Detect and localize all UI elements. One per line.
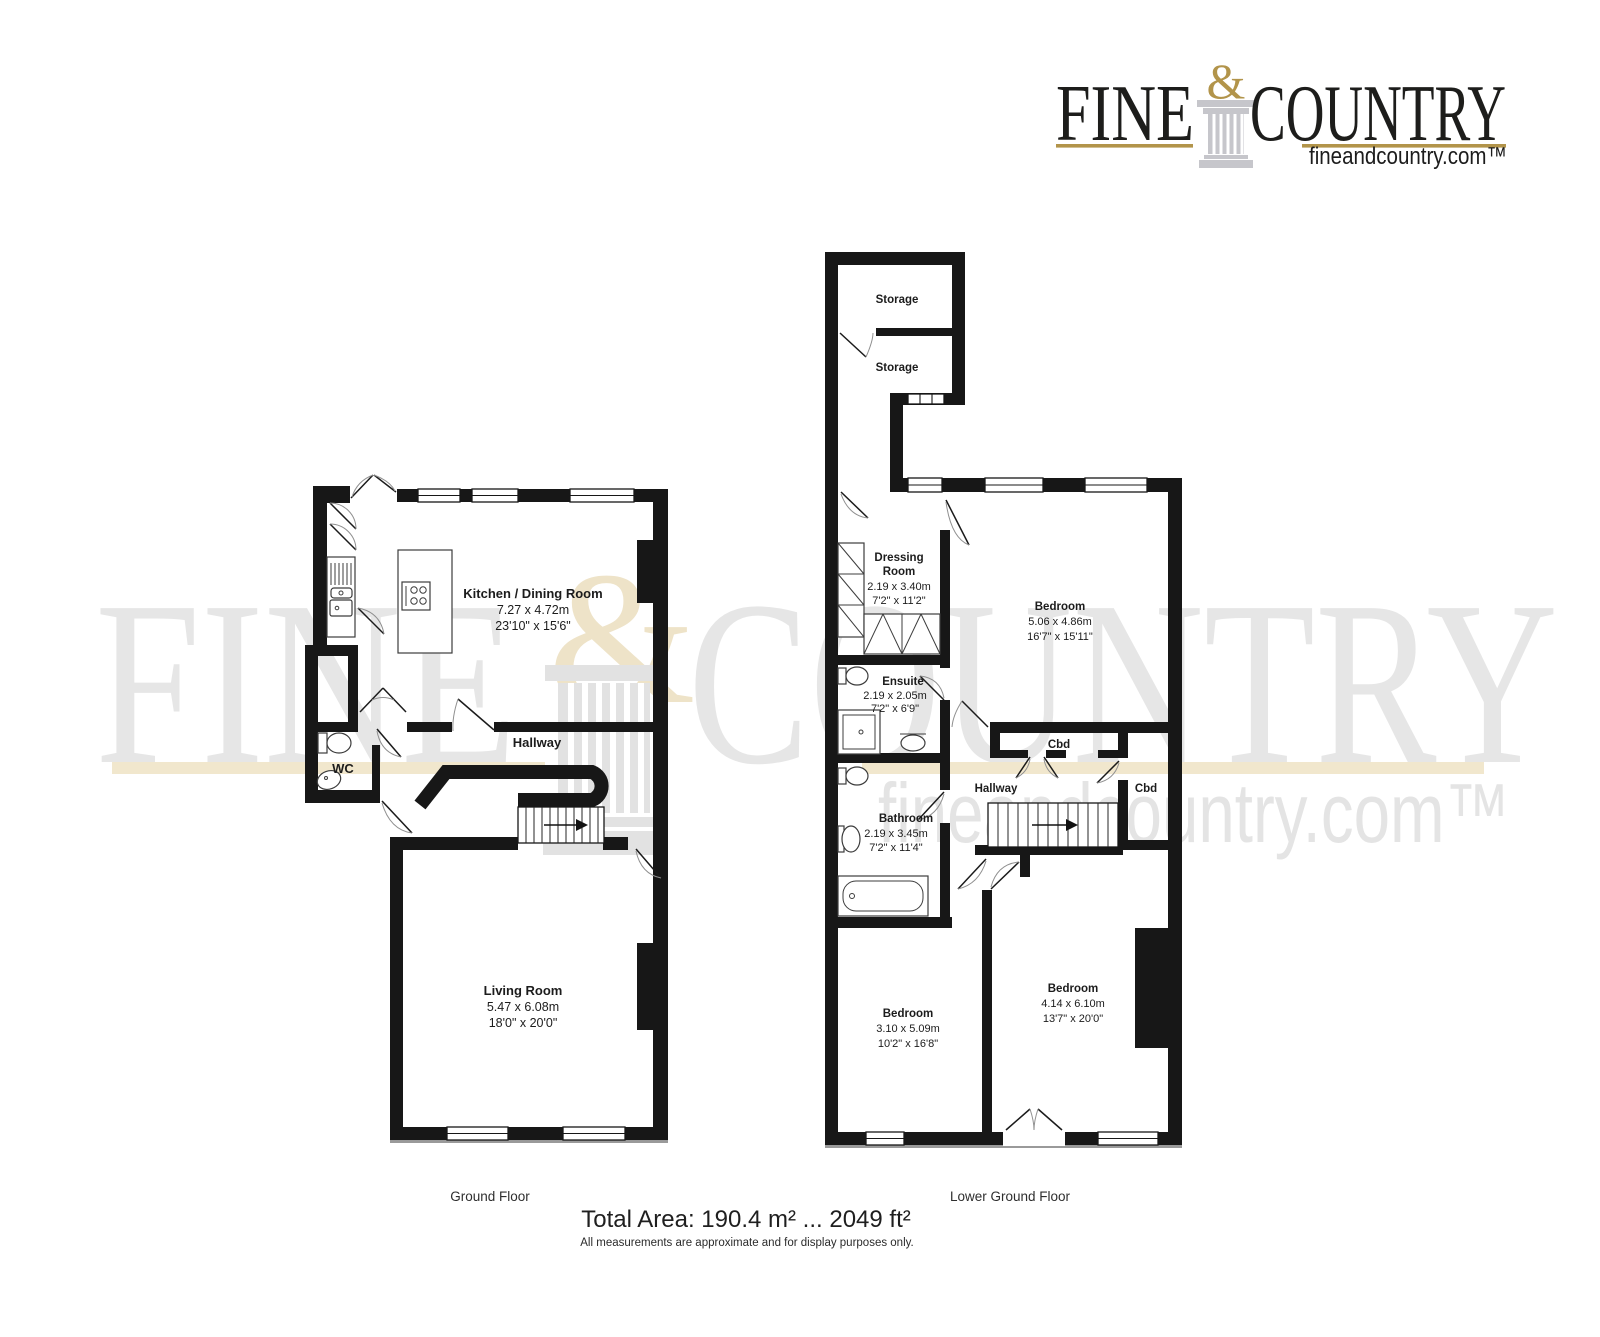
cbd1-name: Cbd — [1048, 739, 1070, 751]
dressing-room-metric: 2.19 x 3.40m — [867, 581, 931, 593]
lower-ground-stairs — [988, 803, 1118, 847]
captions: Ground Floor Lower Ground Floor Total Ar… — [450, 1189, 1070, 1249]
window — [1098, 1132, 1158, 1145]
ensuite-metric: 2.19 x 2.05m — [863, 690, 927, 702]
living-room-metric: 5.47 x 6.08m — [487, 1000, 559, 1014]
logo-website: fineandcountry.com™ — [1309, 143, 1507, 170]
ground-floor-title: Ground Floor — [450, 1189, 530, 1204]
patio-door-opening — [1003, 1131, 1065, 1146]
storage2-name: Storage — [876, 362, 919, 374]
window — [563, 1127, 625, 1140]
window — [908, 478, 942, 492]
bedroom3-name: Bedroom — [1048, 983, 1098, 995]
dressing-room-imperial: 7'2" x 11'2" — [872, 595, 925, 607]
disclaimer-text: All measurements are approximate and for… — [580, 1237, 913, 1249]
watermark-website: fineandcountry.com™ — [878, 766, 1510, 860]
bedroom3-imperial: 13'7" x 20'0" — [1043, 1013, 1103, 1025]
lower-ground-floor-title: Lower Ground Floor — [950, 1189, 1071, 1204]
window — [866, 1132, 904, 1145]
bathroom-imperial: 7'2" x 11'4" — [869, 842, 922, 854]
window — [985, 478, 1043, 492]
window — [447, 1127, 508, 1140]
window — [472, 489, 518, 502]
logo-column-icon — [1197, 100, 1255, 168]
total-area-text: Total Area: 190.4 m² ... 2049 ft² — [581, 1206, 911, 1233]
dressing-room-name-1: Dressing — [874, 552, 923, 564]
logo-gold-underline-left — [1056, 144, 1193, 148]
bathroom-metric: 2.19 x 3.45m — [864, 828, 928, 840]
kitchen-metric: 7.27 x 4.72m — [497, 603, 569, 617]
cbd2-name: Cbd — [1135, 783, 1157, 795]
bedroom2-metric: 3.10 x 5.09m — [876, 1023, 940, 1035]
storage1-name: Storage — [876, 294, 919, 306]
ensuite-name: Ensuite — [882, 676, 924, 688]
kitchen-imperial: 23'10" x 15'6" — [495, 619, 571, 633]
wc-toilet-icon — [318, 733, 351, 753]
dressing-room-name-2: Room — [883, 566, 916, 578]
bedroom1-imperial: 16'7" x 15'11" — [1027, 631, 1093, 643]
storage-steps — [908, 394, 944, 404]
bedroom1-name: Bedroom — [1035, 601, 1085, 613]
floorplan-page: FINE & COUNTRY fineandcountry.com™ FINE … — [0, 0, 1600, 1337]
kitchen-counter-sink-icon — [327, 557, 355, 637]
window — [418, 489, 460, 502]
ensuite-imperial: 7'2" x 6'9" — [871, 703, 919, 715]
fine-and-country-logo: FINE & COUNTRY fineandcountry.com™ — [1056, 53, 1507, 170]
bathroom-toilet-icon — [838, 767, 868, 785]
living-room-name: Living Room — [484, 983, 563, 998]
window — [1085, 478, 1147, 492]
living-room-imperial: 18'0" x 20'0" — [489, 1016, 558, 1030]
bath-icon — [838, 876, 928, 916]
wc-name: WC — [332, 761, 354, 776]
double-door — [1006, 1109, 1062, 1130]
bedroom1-metric: 5.06 x 4.86m — [1028, 616, 1092, 628]
bathroom-name: Bathroom — [879, 813, 933, 825]
window — [570, 489, 634, 502]
kitchen-name: Kitchen / Dining Room — [463, 586, 602, 601]
bedroom3-metric: 4.14 x 6.10m — [1041, 998, 1105, 1010]
bathroom-basin-icon — [838, 826, 860, 852]
bedroom2-imperial: 10'2" x 16'8" — [878, 1038, 938, 1050]
ensuite-toilet-icon — [838, 667, 868, 685]
bedroom2-name: Bedroom — [883, 1008, 933, 1020]
hallway-name: Hallway — [513, 735, 562, 750]
ensuite-shower-icon — [838, 710, 880, 754]
lower-hallway-name: Hallway — [975, 783, 1018, 795]
kitchen-island-hob-icon — [398, 550, 452, 653]
